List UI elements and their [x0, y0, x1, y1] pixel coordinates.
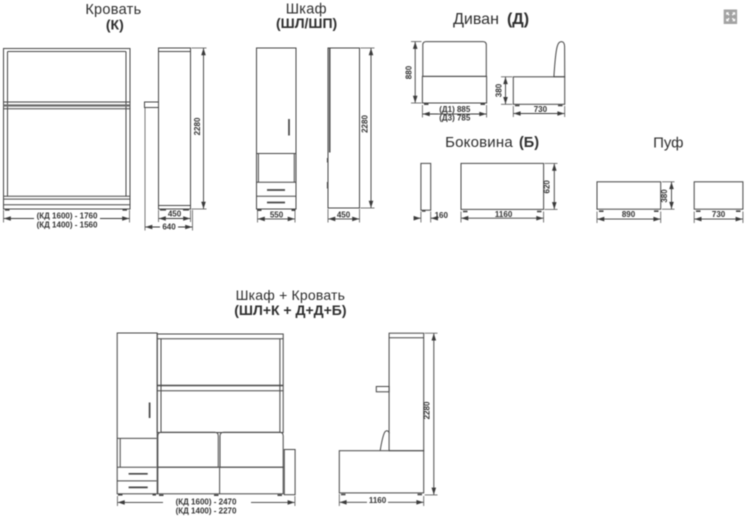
svg-text:2280: 2280 — [360, 115, 369, 133]
svg-text:730: 730 — [712, 210, 726, 219]
svg-text:1160: 1160 — [369, 496, 387, 505]
svg-text:(КД 1400) - 1560: (КД 1400) - 1560 — [37, 220, 98, 229]
svg-text:1160: 1160 — [495, 210, 513, 219]
svg-text:380: 380 — [495, 83, 504, 97]
svg-text:Боковина: Боковина — [445, 134, 513, 151]
svg-text:(К): (К) — [106, 16, 124, 32]
svg-text:Пуф: Пуф — [653, 134, 683, 151]
svg-text:160: 160 — [435, 211, 449, 220]
svg-text:(ШЛ/ШП): (ШЛ/ШП) — [276, 15, 337, 31]
svg-text:2280: 2280 — [423, 401, 432, 419]
svg-text:2280: 2280 — [193, 117, 202, 135]
svg-text:620: 620 — [543, 180, 552, 194]
svg-text:890: 890 — [622, 210, 636, 219]
svg-text:Диван: Диван — [453, 11, 499, 28]
svg-text:450: 450 — [337, 211, 351, 220]
svg-text:880: 880 — [404, 65, 413, 79]
svg-text:(КД 1600) - 2470: (КД 1600) - 2470 — [176, 498, 237, 507]
svg-text:(Д): (Д) — [507, 11, 529, 28]
svg-text:Шкаф + Кровать: Шкаф + Кровать — [236, 287, 346, 303]
svg-text:380: 380 — [660, 189, 669, 203]
svg-text:(ШЛ+К + Д+Д+Б): (ШЛ+К + Д+Д+Б) — [234, 302, 346, 318]
svg-text:730: 730 — [534, 105, 548, 114]
svg-text:(Б): (Б) — [519, 135, 539, 151]
svg-text:(Д3) 785: (Д3) 785 — [439, 114, 471, 123]
svg-text:640: 640 — [162, 223, 176, 232]
svg-text:550: 550 — [270, 211, 284, 220]
svg-text:(КД 1600) - 1760: (КД 1600) - 1760 — [37, 211, 98, 220]
svg-text:(КД 1400) - 2270: (КД 1400) - 2270 — [176, 507, 237, 516]
svg-text:450: 450 — [168, 210, 182, 219]
